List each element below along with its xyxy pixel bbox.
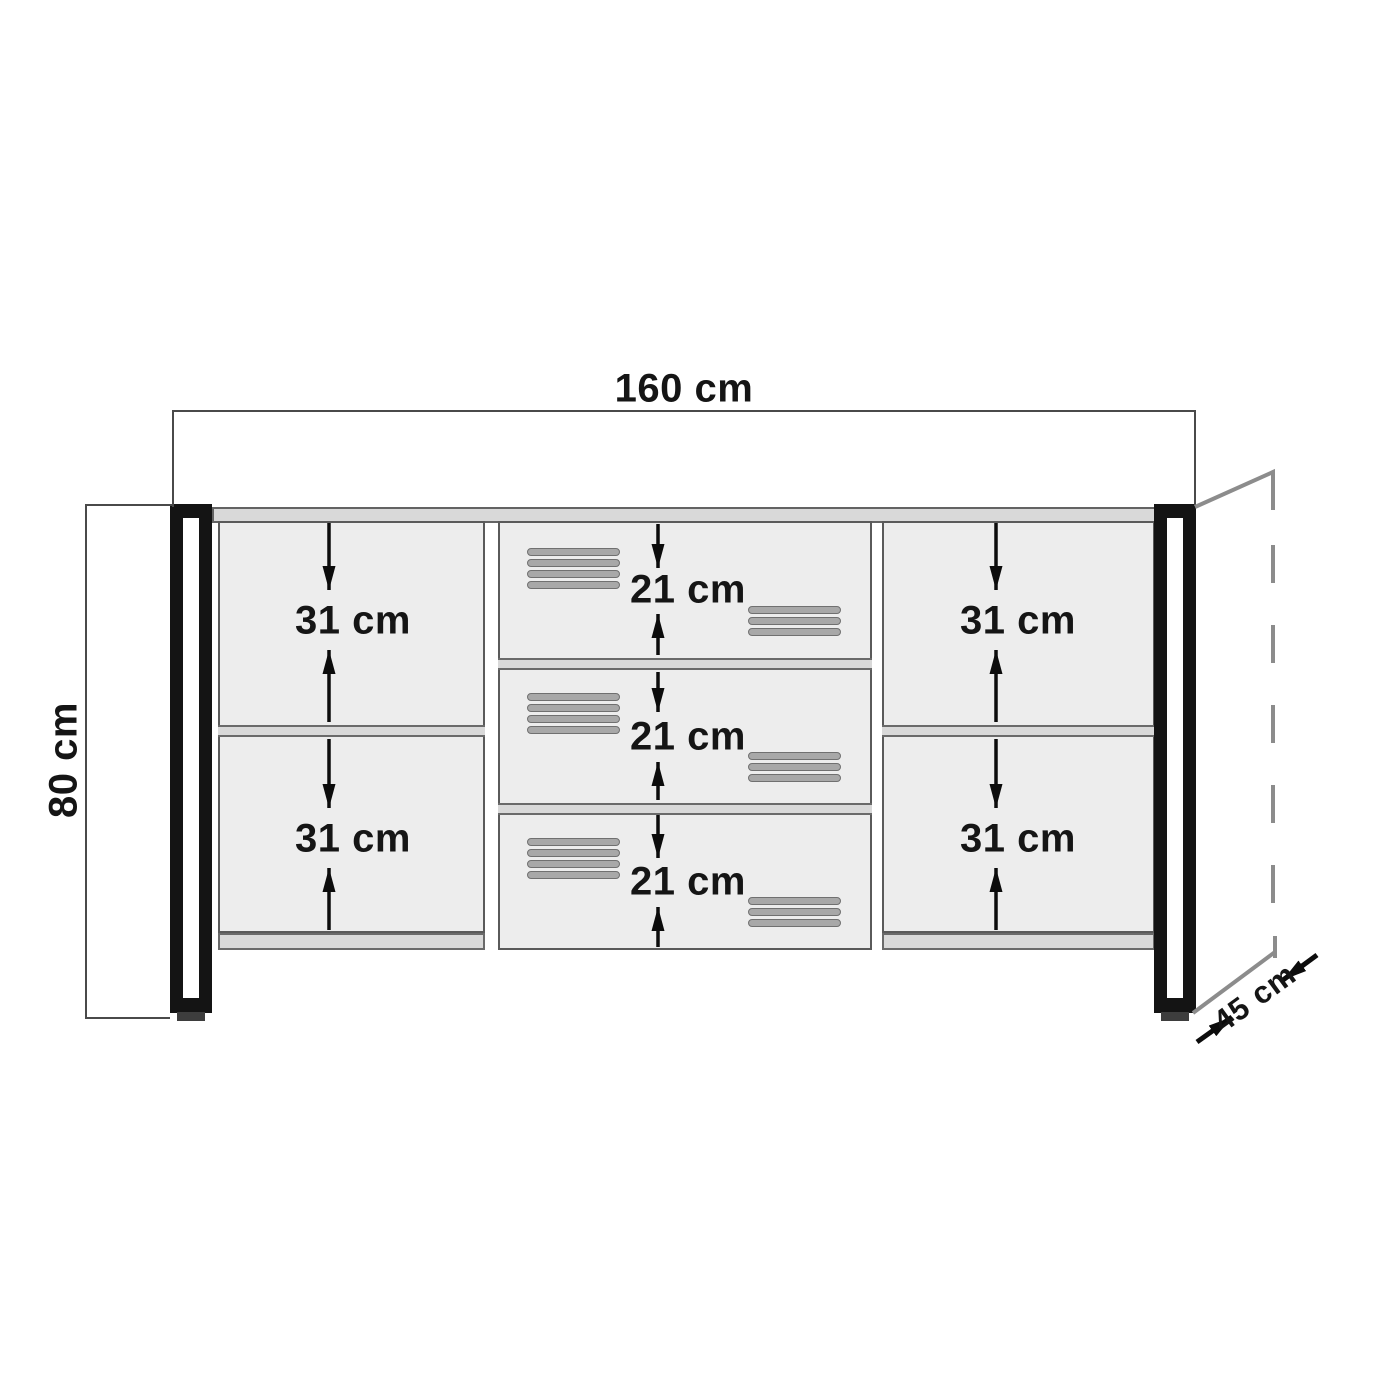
right-top-cell-height-label: 31 cm bbox=[960, 599, 1076, 644]
width-bracket-line bbox=[173, 411, 1195, 507]
dimension-lines-layer bbox=[0, 0, 1400, 1400]
drawer-2-height-label: 21 cm bbox=[630, 715, 746, 760]
furniture-dimension-diagram: 160 cm 80 cm 45 cm 31 cm 31 cm 21 cm 21 … bbox=[0, 0, 1400, 1400]
width-dimension-label: 160 cm bbox=[615, 367, 754, 412]
left-bottom-cell-height-label: 31 cm bbox=[295, 817, 411, 862]
left-top-cell-height-label: 31 cm bbox=[295, 599, 411, 644]
depth-top-guide-line bbox=[1195, 472, 1273, 510]
height-dimension-label: 80 cm bbox=[42, 702, 87, 818]
height-bracket-line bbox=[86, 505, 173, 1018]
drawer-1-height-label: 21 cm bbox=[630, 568, 746, 613]
right-bottom-cell-height-label: 31 cm bbox=[960, 817, 1076, 862]
drawer-3-height-label: 21 cm bbox=[630, 860, 746, 905]
